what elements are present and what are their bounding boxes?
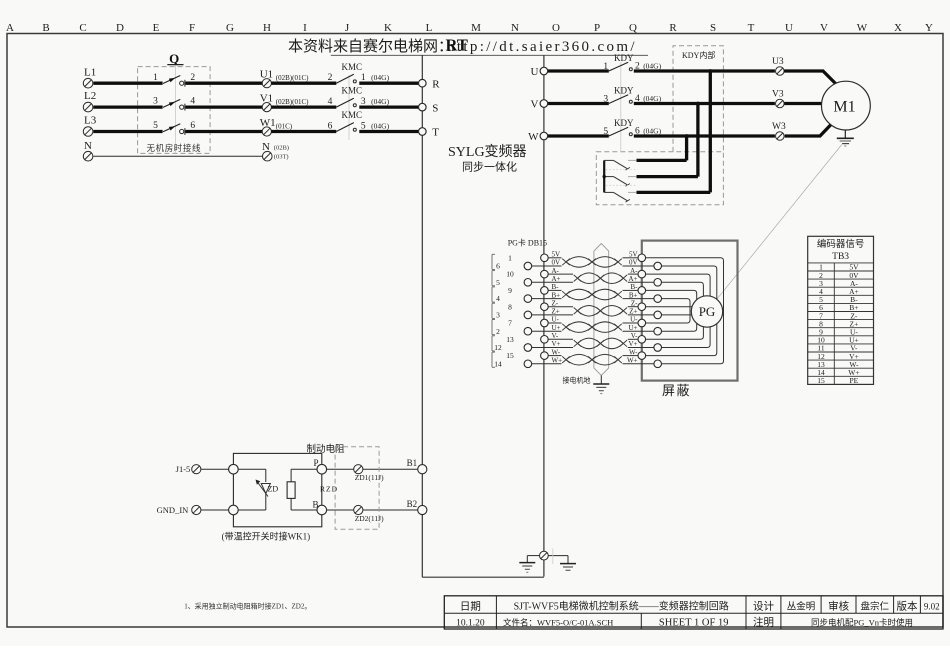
svg-text:0V: 0V [629, 259, 638, 267]
svg-text:2: 2 [328, 73, 333, 83]
svg-text:N: N [511, 22, 519, 34]
svg-text:(02B)(01C): (02B)(01C) [276, 98, 309, 106]
svg-text:2: 2 [635, 61, 640, 71]
svg-text:(带温控开关时接WK1): (带温控开关时接WK1) [222, 531, 311, 542]
svg-text:编码器信号: 编码器信号 [817, 238, 865, 250]
svg-text:S: S [432, 102, 438, 114]
svg-text:SHEET 1 OF 19: SHEET 1 OF 19 [659, 618, 729, 629]
svg-text:5V: 5V [629, 251, 638, 259]
svg-text:(01C): (01C) [276, 122, 293, 130]
svg-text:B: B [42, 22, 49, 34]
svg-text:1: 1 [153, 73, 158, 83]
svg-text:(04G): (04G) [643, 62, 661, 71]
svg-text:12: 12 [494, 343, 502, 352]
svg-text:ZD1(11J): ZD1(11J) [355, 473, 384, 482]
svg-text:U3: U3 [772, 57, 784, 67]
svg-text:W: W [528, 131, 539, 143]
svg-text:TB3: TB3 [832, 252, 849, 262]
svg-text:(04G): (04G) [643, 94, 661, 103]
svg-text:ZD2(11J): ZD2(11J) [355, 514, 384, 523]
svg-text:KDY内部: KDY内部 [682, 50, 715, 60]
svg-text:PG卡 DB15: PG卡 DB15 [508, 237, 547, 247]
svg-text:U+: U+ [628, 324, 637, 332]
svg-text:D: D [116, 22, 124, 34]
svg-text:A+: A+ [628, 275, 637, 283]
svg-text:L3: L3 [84, 115, 97, 127]
svg-text:盘宗仁: 盘宗仁 [861, 600, 890, 612]
svg-text:5: 5 [603, 127, 608, 137]
svg-text:6: 6 [496, 262, 500, 271]
svg-text:4: 4 [496, 294, 500, 303]
svg-text:A+: A+ [552, 275, 561, 283]
svg-text:A: A [6, 22, 14, 34]
svg-text:14: 14 [494, 359, 502, 368]
svg-text:(03T): (03T) [274, 154, 289, 161]
svg-text:KDY: KDY [614, 53, 634, 63]
svg-text:J: J [345, 22, 350, 34]
svg-text:P: P [313, 458, 318, 468]
svg-text:V+: V+ [552, 340, 561, 348]
svg-text:V3: V3 [772, 90, 784, 100]
svg-text:(04G): (04G) [369, 122, 389, 131]
svg-text:(02B): (02B) [274, 145, 289, 152]
svg-text:B2: B2 [407, 499, 418, 509]
svg-text:2: 2 [190, 73, 195, 83]
svg-text:(04G): (04G) [643, 127, 661, 136]
svg-text:KDY: KDY [614, 118, 634, 128]
svg-text:U+: U+ [552, 324, 561, 332]
svg-text:O: O [552, 22, 560, 34]
svg-text:B+: B+ [629, 291, 638, 299]
svg-text:1: 1 [361, 73, 366, 83]
svg-text:W3: W3 [772, 122, 786, 132]
svg-text:(04G): (04G) [369, 73, 389, 82]
svg-text:V: V [531, 98, 539, 110]
svg-text:V-: V- [631, 332, 638, 340]
svg-text:KMC: KMC [342, 110, 363, 120]
svg-text:15: 15 [817, 376, 825, 385]
svg-text:M: M [471, 22, 481, 34]
svg-text:X: X [894, 22, 902, 34]
svg-text:5V: 5V [552, 251, 561, 259]
svg-text:文件名：WVF5-O/C-01A.SCH: 文件名：WVF5-O/C-01A.SCH [503, 618, 613, 628]
svg-text:10: 10 [506, 270, 514, 279]
svg-text:本资料来自赛尔电梯网：: 本资料来自赛尔电梯网： [288, 38, 453, 55]
svg-text:1: 1 [603, 62, 608, 72]
svg-text:U: U [785, 22, 793, 34]
svg-text:L: L [426, 22, 433, 34]
svg-text:3: 3 [496, 311, 500, 320]
svg-text:KMC: KMC [342, 62, 363, 72]
svg-text:N: N [262, 141, 270, 153]
svg-text:B+: B+ [552, 291, 561, 299]
svg-text:R: R [432, 78, 440, 90]
svg-text:日期: 日期 [460, 600, 481, 612]
svg-text:9: 9 [508, 286, 512, 295]
svg-text:V+: V+ [628, 340, 637, 348]
svg-text:P: P [594, 22, 600, 34]
svg-text:PE: PE [850, 376, 859, 385]
svg-text:U-: U- [552, 316, 560, 324]
svg-text:E: E [153, 22, 160, 34]
svg-text:KDY: KDY [614, 86, 634, 96]
svg-text:B-: B- [631, 283, 639, 291]
svg-text:4: 4 [328, 97, 333, 107]
svg-text:8: 8 [508, 302, 512, 311]
svg-text:U-: U- [630, 316, 638, 324]
svg-text:http://dt.saier360.com/: http://dt.saier360.com/ [447, 39, 637, 55]
svg-text:1: 1 [508, 253, 512, 262]
svg-text:M1: M1 [833, 99, 855, 116]
svg-text:丛金明: 丛金明 [787, 600, 816, 612]
svg-text:(04G): (04G) [369, 97, 389, 106]
svg-text:4: 4 [635, 94, 640, 104]
svg-text:W-: W- [552, 348, 561, 356]
svg-text:2: 2 [496, 327, 500, 336]
svg-text:F: F [189, 22, 195, 34]
svg-text:4: 4 [190, 97, 195, 107]
svg-text:无机房时接线: 无机房时接线 [147, 143, 202, 153]
svg-text:注明: 注明 [753, 616, 774, 629]
svg-text:(02B)(01C): (02B)(01C) [276, 74, 309, 82]
svg-text:Q: Q [169, 51, 179, 66]
svg-text:接电机地: 接电机地 [563, 376, 591, 385]
svg-text:W: W [857, 22, 868, 34]
svg-text:5: 5 [361, 122, 366, 132]
svg-text:Z-: Z- [631, 299, 638, 307]
svg-text:T: T [748, 22, 755, 34]
svg-text:C: C [79, 22, 86, 34]
svg-text:15: 15 [506, 351, 514, 360]
svg-text:6: 6 [635, 126, 640, 136]
svg-text:V-: V- [552, 332, 559, 340]
svg-text:1、采用独立制动电阻箱时接ZD1、ZD2。: 1、采用独立制动电阻箱时接ZD1、ZD2。 [184, 602, 311, 611]
svg-text:V: V [820, 22, 828, 34]
svg-text:制动电阻: 制动电阻 [307, 443, 346, 455]
svg-text:屏蔽: 屏蔽 [662, 383, 691, 398]
svg-text:PG: PG [699, 304, 716, 319]
svg-text:3: 3 [361, 97, 366, 107]
svg-text:同步电机配PG_Vn卡时使用: 同步电机配PG_Vn卡时使用 [811, 618, 913, 628]
svg-text:B: B [312, 499, 318, 509]
svg-text:ZD: ZD [268, 485, 279, 494]
svg-text:Z+: Z+ [629, 308, 637, 316]
svg-text:13: 13 [506, 335, 514, 344]
svg-text:版本: 版本 [897, 599, 918, 612]
svg-text:K: K [384, 22, 392, 34]
svg-text:6: 6 [190, 121, 195, 131]
svg-text:6: 6 [328, 121, 333, 131]
svg-text:7: 7 [508, 319, 512, 328]
svg-text:10.1.20: 10.1.20 [456, 619, 485, 629]
svg-text:I: I [303, 22, 307, 34]
svg-text:B1: B1 [407, 458, 418, 468]
svg-text:S: S [710, 22, 716, 34]
svg-text:W+: W+ [627, 357, 638, 365]
svg-text:0V: 0V [552, 259, 561, 267]
svg-text:9.02: 9.02 [924, 601, 940, 611]
svg-text:R: R [669, 22, 677, 34]
svg-text:T: T [432, 127, 439, 139]
svg-text:L1: L1 [84, 66, 96, 78]
svg-text:G: G [226, 22, 234, 34]
svg-text:A-: A- [630, 267, 638, 275]
svg-text:J1-5: J1-5 [176, 464, 191, 474]
svg-text:同步一体化: 同步一体化 [462, 159, 517, 173]
svg-text:3: 3 [153, 97, 158, 107]
svg-text:L2: L2 [84, 90, 96, 102]
svg-text:W+: W+ [552, 357, 563, 365]
svg-text:H: H [263, 22, 271, 34]
svg-text:审核: 审核 [828, 599, 849, 612]
svg-text:GND_IN: GND_IN [157, 505, 189, 515]
svg-text:KMC: KMC [342, 86, 363, 96]
svg-text:Z+: Z+ [552, 308, 560, 316]
svg-text:5: 5 [153, 121, 158, 131]
svg-text:Z-: Z- [552, 299, 559, 307]
svg-text:N: N [84, 140, 92, 152]
svg-text:SJT-WVF5电梯微机控制系统——变频器控制回路: SJT-WVF5电梯微机控制系统——变频器控制回路 [514, 599, 729, 612]
svg-text:A-: A- [552, 267, 560, 275]
svg-text:RT: RT [446, 36, 468, 55]
svg-text:Y: Y [925, 22, 933, 34]
svg-text:5: 5 [496, 278, 500, 287]
svg-text:设计: 设计 [753, 599, 774, 612]
svg-text:B-: B- [552, 283, 560, 291]
svg-text:Q: Q [629, 22, 637, 34]
svg-text:3: 3 [603, 94, 608, 104]
svg-text:SYLG变频器: SYLG变频器 [448, 144, 527, 160]
svg-text:W-: W- [629, 348, 638, 356]
svg-text:U: U [531, 66, 539, 78]
